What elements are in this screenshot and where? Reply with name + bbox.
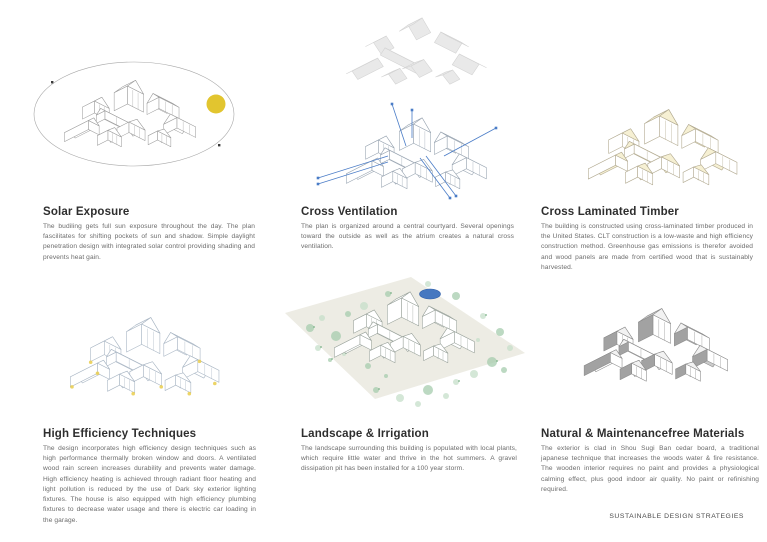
natural-materials-diagram [543,272,760,415]
panel-title: High Efficiency Techniques [43,428,256,440]
panel-cross-ventilation: Cross Ventilation The plan is organized … [301,206,514,253]
panel-body: The exterior is clad in Shou Sugi Ban ce… [541,444,759,495]
landscape-irrigation-diagram [278,270,530,424]
presentation-board: Solar Exposure The budiling gets full su… [0,0,767,542]
sun-path-marker [218,144,220,146]
panel-body: The building is constructed using cross-… [541,222,753,273]
panel-title: Natural & Maintenancefree Materials [541,428,759,440]
sun-path-marker [51,81,53,83]
panel-body: The budiling gets full sun exposure thro… [43,222,255,263]
cross-laminated-timber-diagram [538,76,762,204]
panel-title: Solar Exposure [43,206,255,218]
board-title: SUSTAINABLE DESIGN STRATEGIES [609,513,744,520]
sun-icon [207,95,226,114]
panel-title: Landscape & Irrigation [301,428,517,440]
panel-landscape-irrigation: Landscape & Irrigation The landscape sur… [301,428,517,475]
dissipation-pit [420,289,441,299]
panel-natural-materials: Natural & Maintenancefree Materials The … [541,428,759,495]
high-efficiency-diagram [26,276,258,424]
solar-exposure-diagram [22,48,254,196]
panel-body: The plan is organized around a central c… [301,222,514,253]
panel-body: The design incorporates high efficiency … [43,444,256,526]
panel-title: Cross Laminated Timber [541,206,753,218]
panel-solar-exposure: Solar Exposure The budiling gets full su… [43,206,255,263]
panel-high-efficiency: High Efficiency Techniques The design in… [43,428,256,526]
panel-cross-laminated-timber: Cross Laminated Timber The building is c… [541,206,753,273]
sun-path-ellipse [34,62,234,166]
panel-title: Cross Ventilation [301,206,514,218]
cross-ventilation-diagram [292,6,524,204]
panel-body: The landscape surrounding this building … [301,444,517,475]
